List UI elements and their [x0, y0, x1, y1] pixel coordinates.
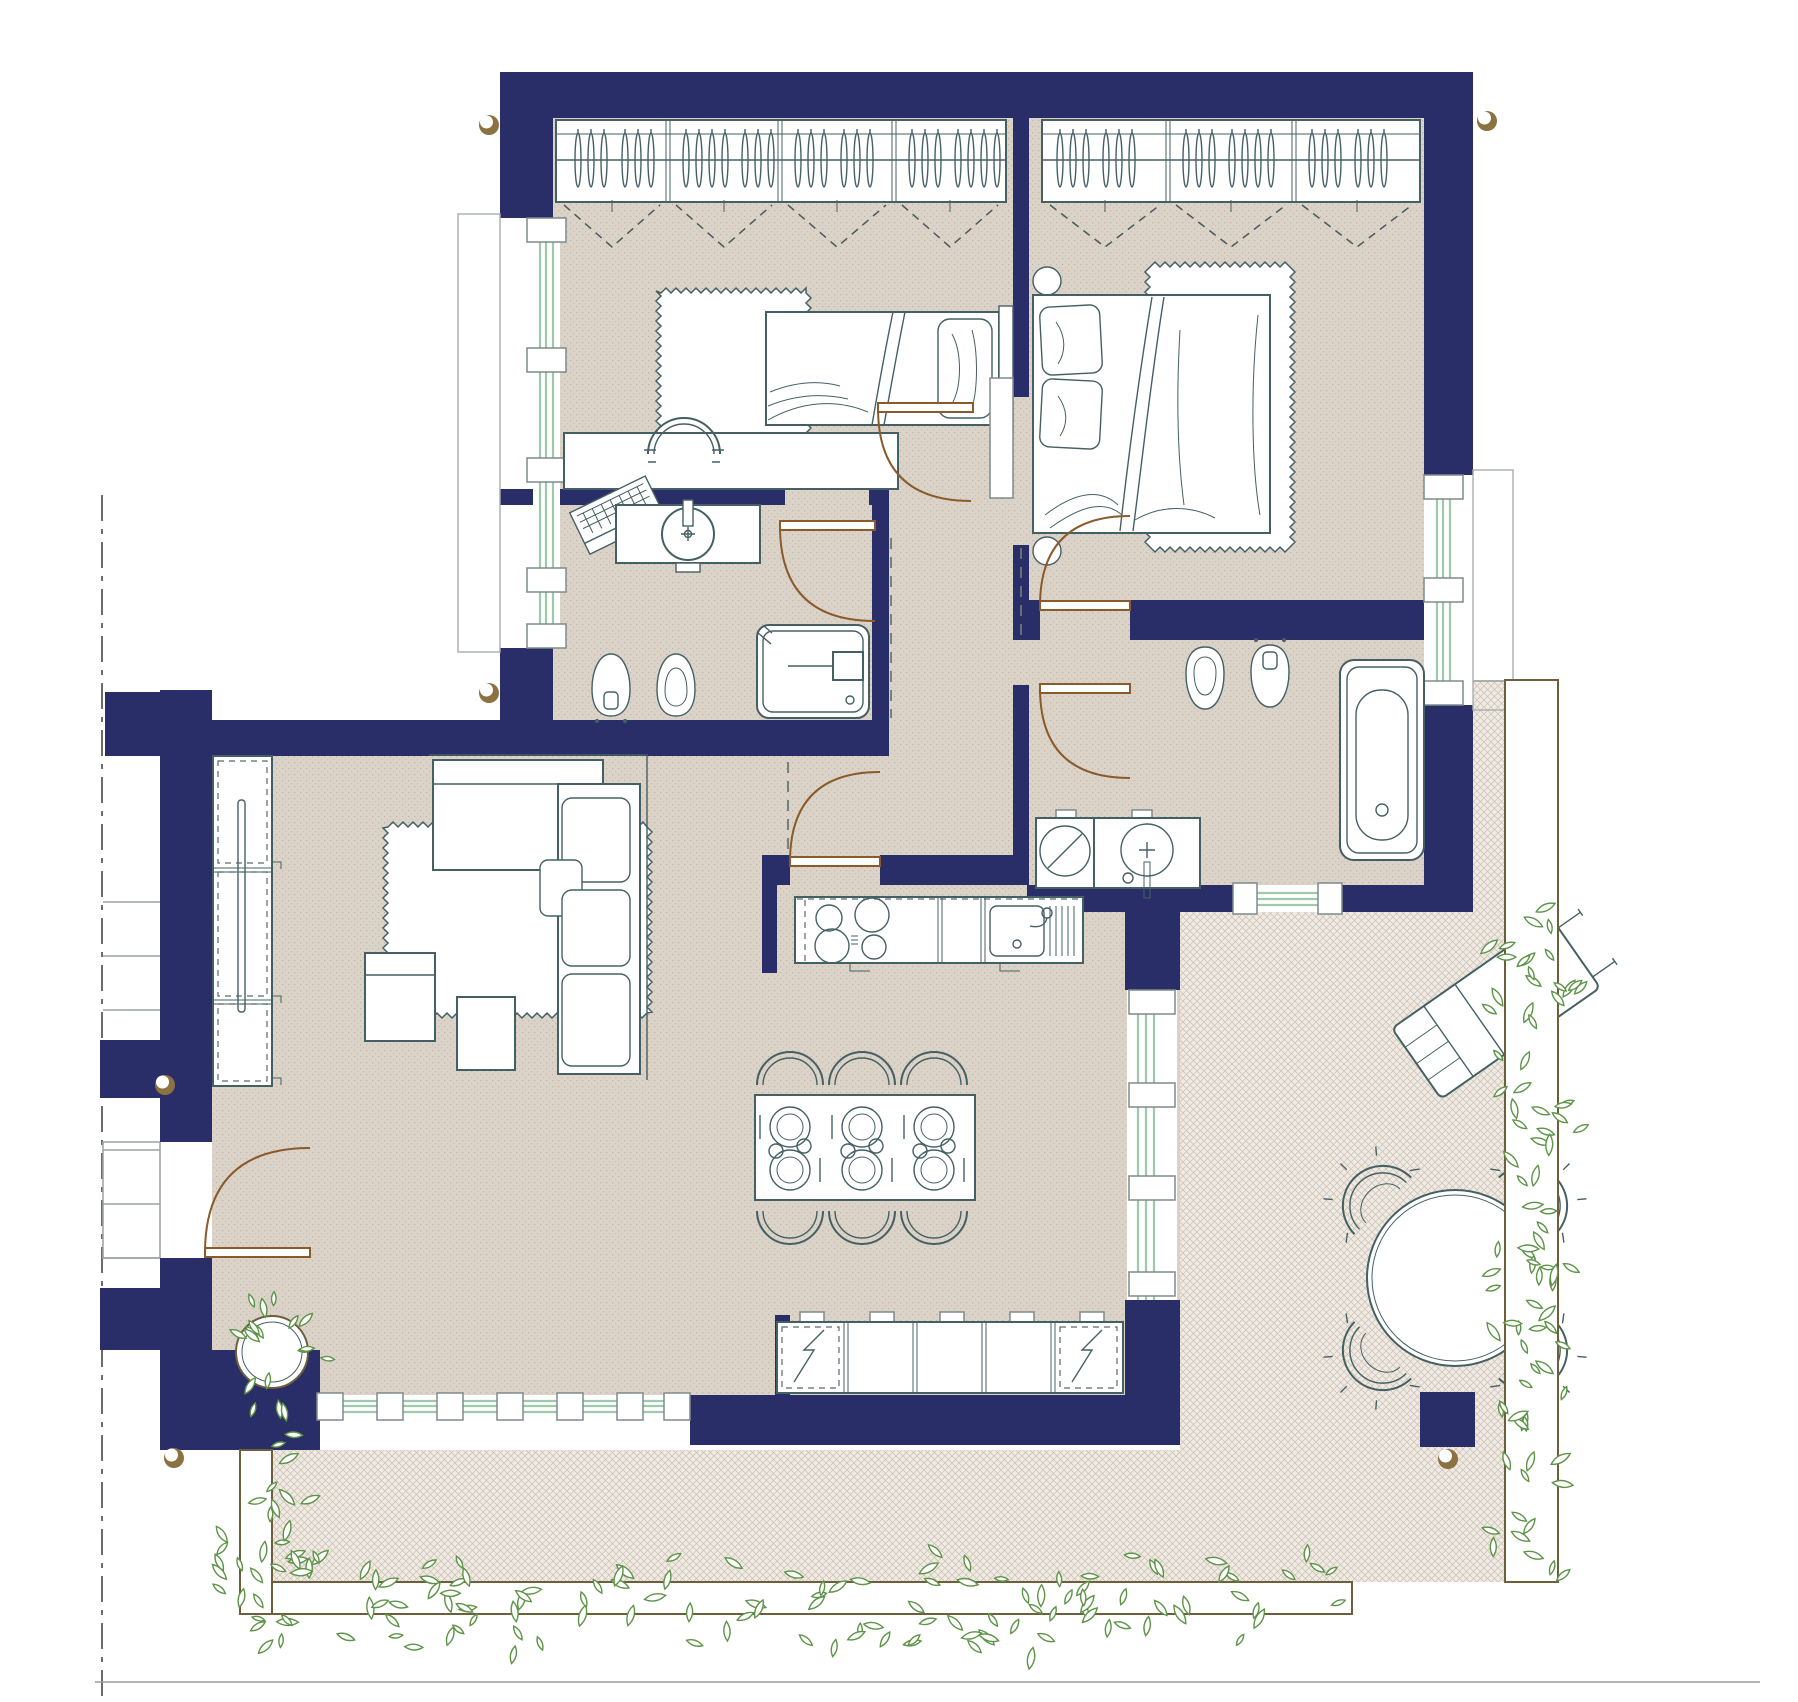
column-marker-icon — [1438, 1449, 1458, 1469]
coffee-table — [457, 997, 515, 1070]
column-marker-icon — [1477, 111, 1497, 131]
wall-kitchen-top-a — [777, 855, 790, 885]
wall-kitchen-pier-lower — [1125, 1300, 1180, 1395]
bidet — [657, 654, 695, 716]
pillow — [1039, 304, 1102, 375]
window-bath2-terrace — [1233, 883, 1342, 914]
wall-kitchen-pier-upper — [1125, 905, 1180, 990]
wall-living-left-upper — [160, 690, 212, 1142]
round-stool-top — [1033, 267, 1061, 295]
wall-living-top — [105, 720, 889, 756]
wall-stub-site-b — [100, 1288, 160, 1350]
wall-living-left-lower — [160, 1258, 212, 1350]
wall-left-upper — [500, 72, 553, 218]
terrace-pillar — [1420, 1392, 1475, 1447]
window-bedroom1-left — [458, 214, 566, 652]
wall-right-lower — [1424, 705, 1473, 912]
column-marker-icon — [155, 1075, 175, 1095]
window-living-bottom — [317, 1393, 690, 1420]
tap — [683, 500, 693, 526]
column-marker-icon — [479, 115, 499, 135]
double-bed — [1033, 267, 1270, 565]
wall-bed2-bottom — [1130, 600, 1424, 640]
column-marker-icon — [479, 683, 499, 703]
planter-left — [240, 1450, 272, 1614]
window-kitchen-terrace — [1127, 990, 1177, 1300]
wall-hall-bath2-b — [1013, 685, 1029, 885]
wall-right-upper — [1424, 72, 1473, 475]
wall-bath2-bottom-b — [1340, 885, 1473, 912]
cushion — [562, 974, 630, 1066]
window-bedroom2-right — [1424, 470, 1513, 710]
pillow — [1039, 378, 1102, 449]
wall-bath1-hall — [872, 505, 889, 720]
wall-kitchen-left-stub — [762, 855, 777, 973]
kitchen-lower-cabinets — [777, 1312, 1123, 1393]
entry-landing — [103, 1142, 160, 1258]
floor-texture-bottom — [212, 756, 1180, 1395]
washbasin-counter — [1094, 810, 1200, 898]
wall-kitchen-bottom — [690, 1395, 1180, 1445]
wall-top — [500, 72, 1473, 118]
tall-cabinet — [213, 756, 281, 1086]
floor-plan-page — [0, 0, 1798, 1702]
floor-plan-canvas — [0, 0, 1798, 1702]
desk — [564, 433, 898, 489]
wall-stub-site-a — [100, 1040, 160, 1098]
cushion — [562, 890, 630, 966]
kitchen-top-counter — [795, 897, 1083, 971]
wall-stub-bath1-door — [869, 489, 889, 505]
wardrobe-bedroom-2 — [1042, 120, 1420, 202]
wall-bedroom-divider — [1013, 72, 1029, 397]
wall-kitchen-top-b — [880, 855, 1013, 885]
washing-machine — [1036, 810, 1094, 888]
armchair — [365, 953, 435, 1041]
shower-enclosure — [757, 625, 869, 718]
column-marker-icon — [164, 1448, 184, 1468]
bidet — [1186, 647, 1224, 709]
bathtub — [1340, 660, 1424, 860]
